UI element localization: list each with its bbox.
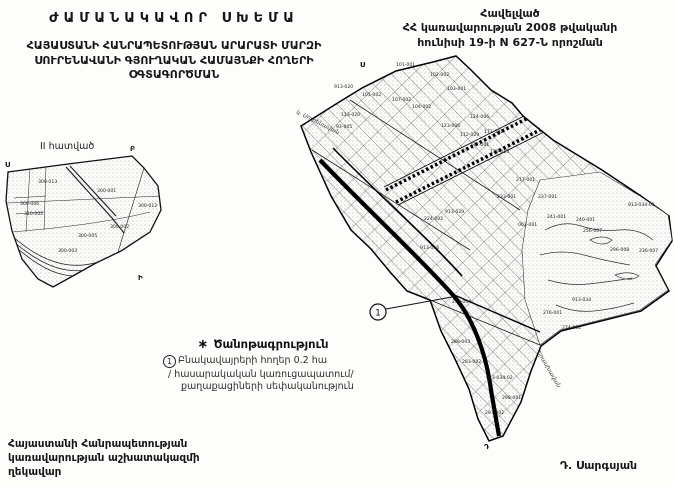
appendix-line: ՀՀ կառավարության 2008 թվականի: [348, 21, 672, 35]
parcel-label: 913-020: [334, 84, 353, 90]
corner-letter: Ի: [138, 274, 143, 282]
map-legend: ∗Ծանոթագրություն 1 Բնակավայրերի հողեր 0.…: [163, 337, 363, 392]
parcel-label: 283-002: [462, 359, 481, 365]
annotation-number: 1: [375, 309, 381, 319]
parcel-label: 300-003: [58, 248, 77, 254]
signature-title: Հայաստանի Հանրապետության կառավարության ա…: [8, 438, 200, 480]
parcel-label: 274-002: [562, 325, 581, 331]
parcel-label: 256-007: [583, 228, 602, 234]
parcel-label: 253-004: [452, 299, 471, 305]
signature-name: Դ. Սարգսյան: [560, 459, 637, 472]
parcel-label: 112-029: [460, 132, 479, 138]
parcel-label: 300-013: [38, 179, 57, 185]
parcel-label: 101-002: [362, 92, 381, 98]
parcel-label: 107-002: [392, 97, 411, 103]
parcel-label: 171-001: [484, 129, 503, 135]
parcel-label: 103-001: [447, 86, 466, 92]
parcel-label: 913-029: [445, 209, 464, 215]
parcel-label: 300-001: [97, 188, 116, 194]
legend-item-text: քաղաքացիների սեփականություն: [181, 381, 363, 392]
parcel-label: 217-001: [516, 177, 535, 183]
parcel-label: 241-001: [547, 214, 566, 220]
parcel-label: 913-034-01: [628, 202, 655, 208]
parcel-label: 237-001: [538, 194, 557, 200]
parcel-label: 102-002: [430, 72, 449, 78]
corner-letter: Դ: [484, 443, 490, 451]
parcel-label: 913-034: [572, 297, 591, 303]
parcel-label: 179-013: [490, 149, 509, 155]
parcel-label: 913-016: [420, 245, 439, 251]
parcel-label: 300-005: [78, 233, 97, 239]
subtitle-line: ՀԱՅԱՍՏԱՆԻ ՀԱՆՐԱՊԵՏՈՒԹՅԱՆ ԱՐԱՐԱՏԻ ՄԱՐԶԻ: [2, 39, 346, 54]
parcel-label: 240-001: [576, 217, 595, 223]
corner-letter: Ս: [360, 61, 366, 69]
appendix-line: հունիսի 19-ի N 627-Ն որոշման: [348, 36, 672, 50]
page-subtitle: ՀԱՅԱՍՏԱՆԻ ՀԱՆՐԱՊԵՏՈՒԹՅԱՆ ԱՐԱՐԱՏԻ ՄԱՐԶԻ Ս…: [2, 39, 346, 83]
corner-letter: Բ: [130, 145, 135, 153]
parcel-label: 123-006: [441, 123, 460, 129]
parcel-label: 233-001: [497, 194, 516, 200]
asterisk-icon: ∗: [198, 337, 209, 352]
parcel-label: 298-001: [502, 395, 521, 401]
corner-letter: Ս: [5, 161, 11, 169]
signature-title-line: Հայաստանի Հանրապետության: [8, 438, 200, 452]
parcel-label: 296-008: [610, 247, 629, 253]
legend-heading-text: Ծանոթագրություն: [213, 337, 328, 351]
legend-heading: ∗Ծանոթագրություն: [163, 337, 363, 352]
subtitle-line: ՍՈՒՐԵՆԱՎԱՆԻ ԳՅՈՒՂԱԿԱՆ ՀԱՄԱՅՆՔԻ ՀՈՂԵՐԻ: [2, 54, 346, 69]
inset-map-title: II հատված: [40, 141, 94, 152]
parcel-label: 113-020: [341, 112, 360, 118]
legend-item: 1 Բնակավայրերի հողեր 0.2 հա: [163, 355, 363, 368]
parcel-label: 003-001: [518, 222, 537, 228]
parcel-label: 913-034-02: [486, 375, 513, 381]
parcel-label: 177-001: [470, 142, 489, 148]
inset-map: II հատված 300-001300-013300-012300-00631…: [5, 141, 161, 287]
signature-title-line: կառավարության աշխատակազմի: [8, 452, 200, 466]
legend-item-text: / հասարակական կառուցապատում/: [168, 369, 363, 380]
parcel-label: 124-006: [470, 114, 489, 120]
parcel-label: 236-007: [639, 248, 658, 254]
appendix-note: Հավելված ՀՀ կառավարության 2008 թվականի հ…: [348, 7, 672, 50]
parcel-label: 297-002: [485, 410, 504, 416]
signature-title-line: ղեկավար: [8, 466, 200, 480]
subtitle-line: ՕԳՏԱԳՈՐԾՄԱՆ: [2, 68, 346, 83]
parcel-label: 288-003: [451, 339, 470, 345]
parcel-label: 101-001: [396, 62, 415, 68]
parcel-label: 300-012: [138, 203, 157, 209]
appendix-line: Հավելված: [348, 7, 672, 21]
inset-map-boundary: [6, 156, 161, 287]
parcel-label: 93-005: [336, 124, 352, 130]
parcel-label: 300-002: [110, 224, 129, 230]
legend-item-text: Բնակավայրերի հողեր 0.2 հա: [178, 355, 327, 366]
edge-label-canal: Երասխավան: [535, 350, 561, 389]
parcel-label: 224-002: [424, 216, 443, 222]
parcel-label: 300-006: [20, 201, 39, 207]
circled-one-icon: 1: [163, 355, 176, 368]
parcel-label: 104-002: [412, 104, 431, 110]
parcel-label: 310-002: [24, 211, 43, 217]
parcel-label: 276-001: [543, 310, 562, 316]
page-title: ԺԱՄԱՆԱԿԱՎՈՐ ՍԽԵՄԱ: [0, 11, 348, 26]
